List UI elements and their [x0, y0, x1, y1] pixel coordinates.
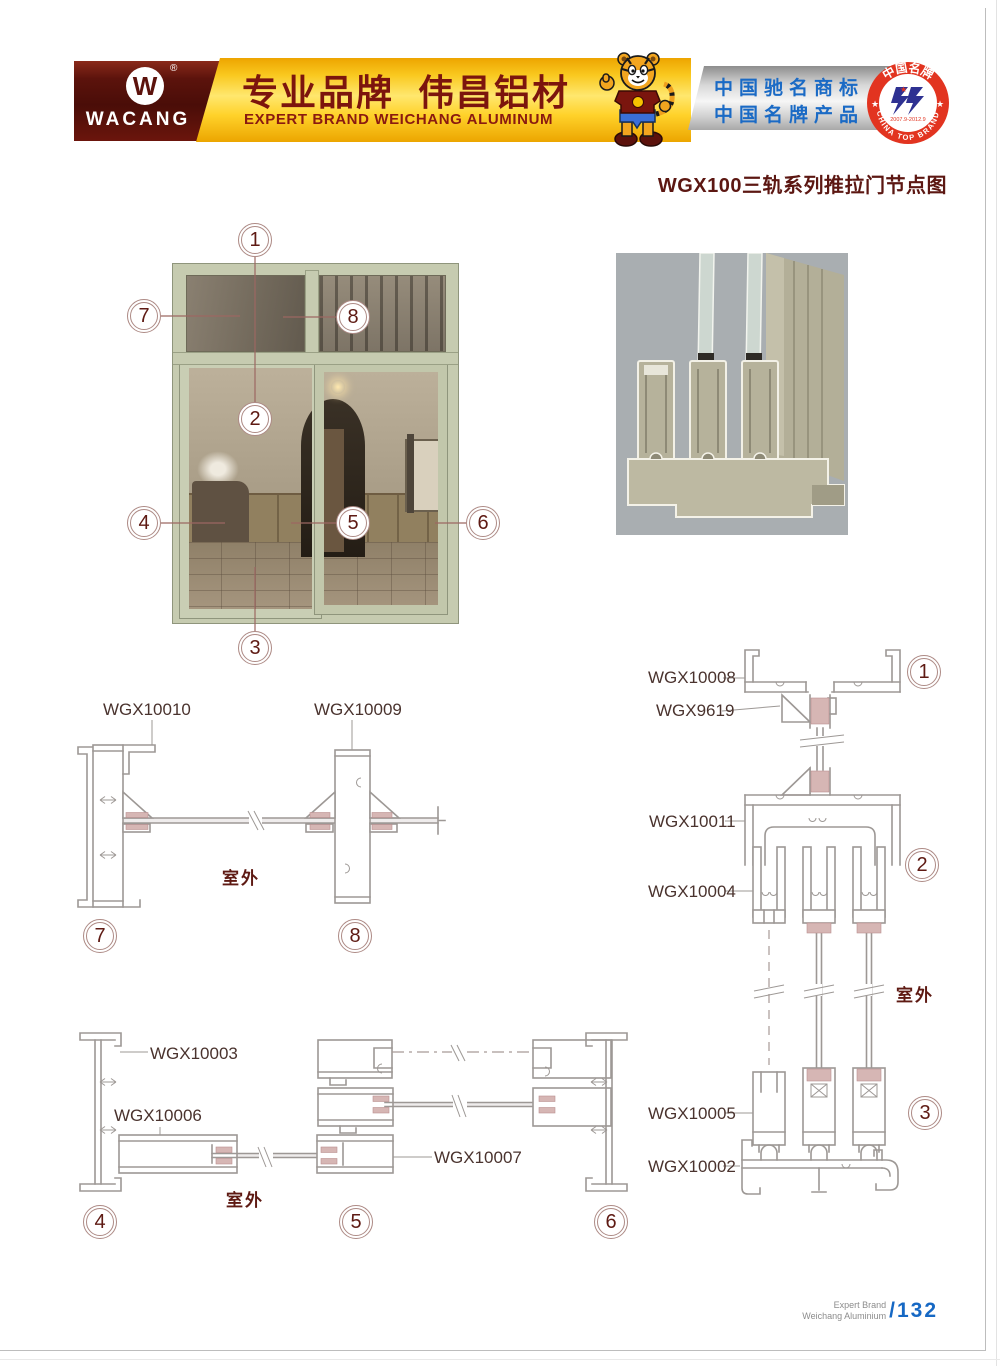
drawing-callout-3: 3	[908, 1096, 942, 1130]
tiger-mascot-icon	[594, 50, 686, 150]
outdoor-label-78: 室外	[222, 864, 260, 889]
honor-line-1: 中国驰名商标	[714, 73, 864, 100]
footer-brand-line1: Expert Brand	[802, 1300, 886, 1311]
photo-leader-lines	[120, 220, 500, 670]
svg-text:★: ★	[871, 99, 879, 109]
photo-callout-6: 6	[466, 506, 500, 540]
profile-3d-render	[616, 253, 848, 535]
page-border-bottom	[0, 1350, 986, 1351]
photo-callout-8: 8	[336, 300, 370, 334]
photo-callout-5: 5	[336, 506, 370, 540]
wacang-logo: W ® WACANG	[74, 61, 220, 141]
footer-brand-line2: Weichang Aluminium	[802, 1311, 886, 1322]
page-edge-right	[996, 0, 997, 1366]
part-label-wgx10007: WGX10007	[434, 1148, 522, 1168]
part-label-wgx10011: WGX10011	[649, 812, 736, 832]
outdoor-label-456: 室外	[226, 1186, 264, 1211]
footer: Expert Brand Weichang Aluminium /132	[802, 1299, 938, 1323]
drawing-callout-1: 1	[907, 655, 941, 689]
part-label-wgx10003: WGX10003	[150, 1044, 238, 1064]
monogram-letter: W	[133, 71, 158, 101]
page-border-right	[985, 8, 986, 1351]
drawing-callout-4: 4	[83, 1205, 117, 1239]
drawing-callout-2: 2	[905, 848, 939, 882]
drawing-callout-6: 6	[594, 1205, 628, 1239]
honor-line-2: 中国名牌产品	[714, 100, 864, 127]
svg-text:★: ★	[936, 99, 944, 109]
page-title: WGX100三轨系列推拉门节点图	[658, 169, 947, 198]
wacang-monogram-icon: W	[126, 67, 164, 105]
part-label-wgx9619: WGX9619	[656, 701, 734, 721]
footer-brand-text: Expert Brand Weichang Aluminium	[802, 1300, 886, 1322]
photo-callout-2: 2	[238, 402, 272, 436]
catalog-page: W ® WACANG 专业品牌 伟昌铝材 EXPERT BRAND WEICHA…	[0, 0, 1000, 1366]
photo-callout-1: 1	[238, 223, 272, 257]
svg-text:★: ★	[900, 85, 907, 94]
page-number: /132	[889, 1299, 938, 1323]
part-label-wgx10010: WGX10010	[103, 700, 191, 720]
registered-mark: ®	[170, 63, 177, 74]
seal-years-text: 2007.9-2012.9	[890, 117, 925, 123]
section-drawing-7-8	[60, 695, 490, 965]
part-label-wgx10008: WGX10008	[648, 668, 736, 688]
drawing-callout-5: 5	[339, 1205, 373, 1239]
photo-callout-7: 7	[127, 299, 161, 333]
china-top-brand-seal-icon: 中国名牌 CHINA TOP BRAND ★ ★ ★ 2007.9-2012.9	[864, 59, 952, 147]
banner-slogan-cn: 专业品牌 伟昌铝材	[242, 64, 570, 116]
page-edge-bottom	[0, 1359, 1000, 1360]
drawing-callout-8: 8	[338, 919, 372, 953]
part-label-wgx10004: WGX10004	[648, 882, 736, 902]
part-label-wgx10005: WGX10005	[648, 1104, 736, 1124]
banner-slogan-en: EXPERT BRAND WEICHANG ALUMINUM	[244, 111, 553, 128]
outdoor-label-123: 室外	[896, 981, 934, 1006]
photo-callout-3: 3	[238, 631, 272, 665]
part-label-wgx10006: WGX10006	[114, 1106, 202, 1126]
photo-callout-4: 4	[127, 506, 161, 540]
part-label-wgx10009: WGX10009	[314, 700, 402, 720]
part-label-wgx10002: WGX10002	[648, 1157, 736, 1177]
logo-wordmark: WACANG	[74, 109, 202, 131]
drawing-callout-7: 7	[83, 919, 117, 953]
